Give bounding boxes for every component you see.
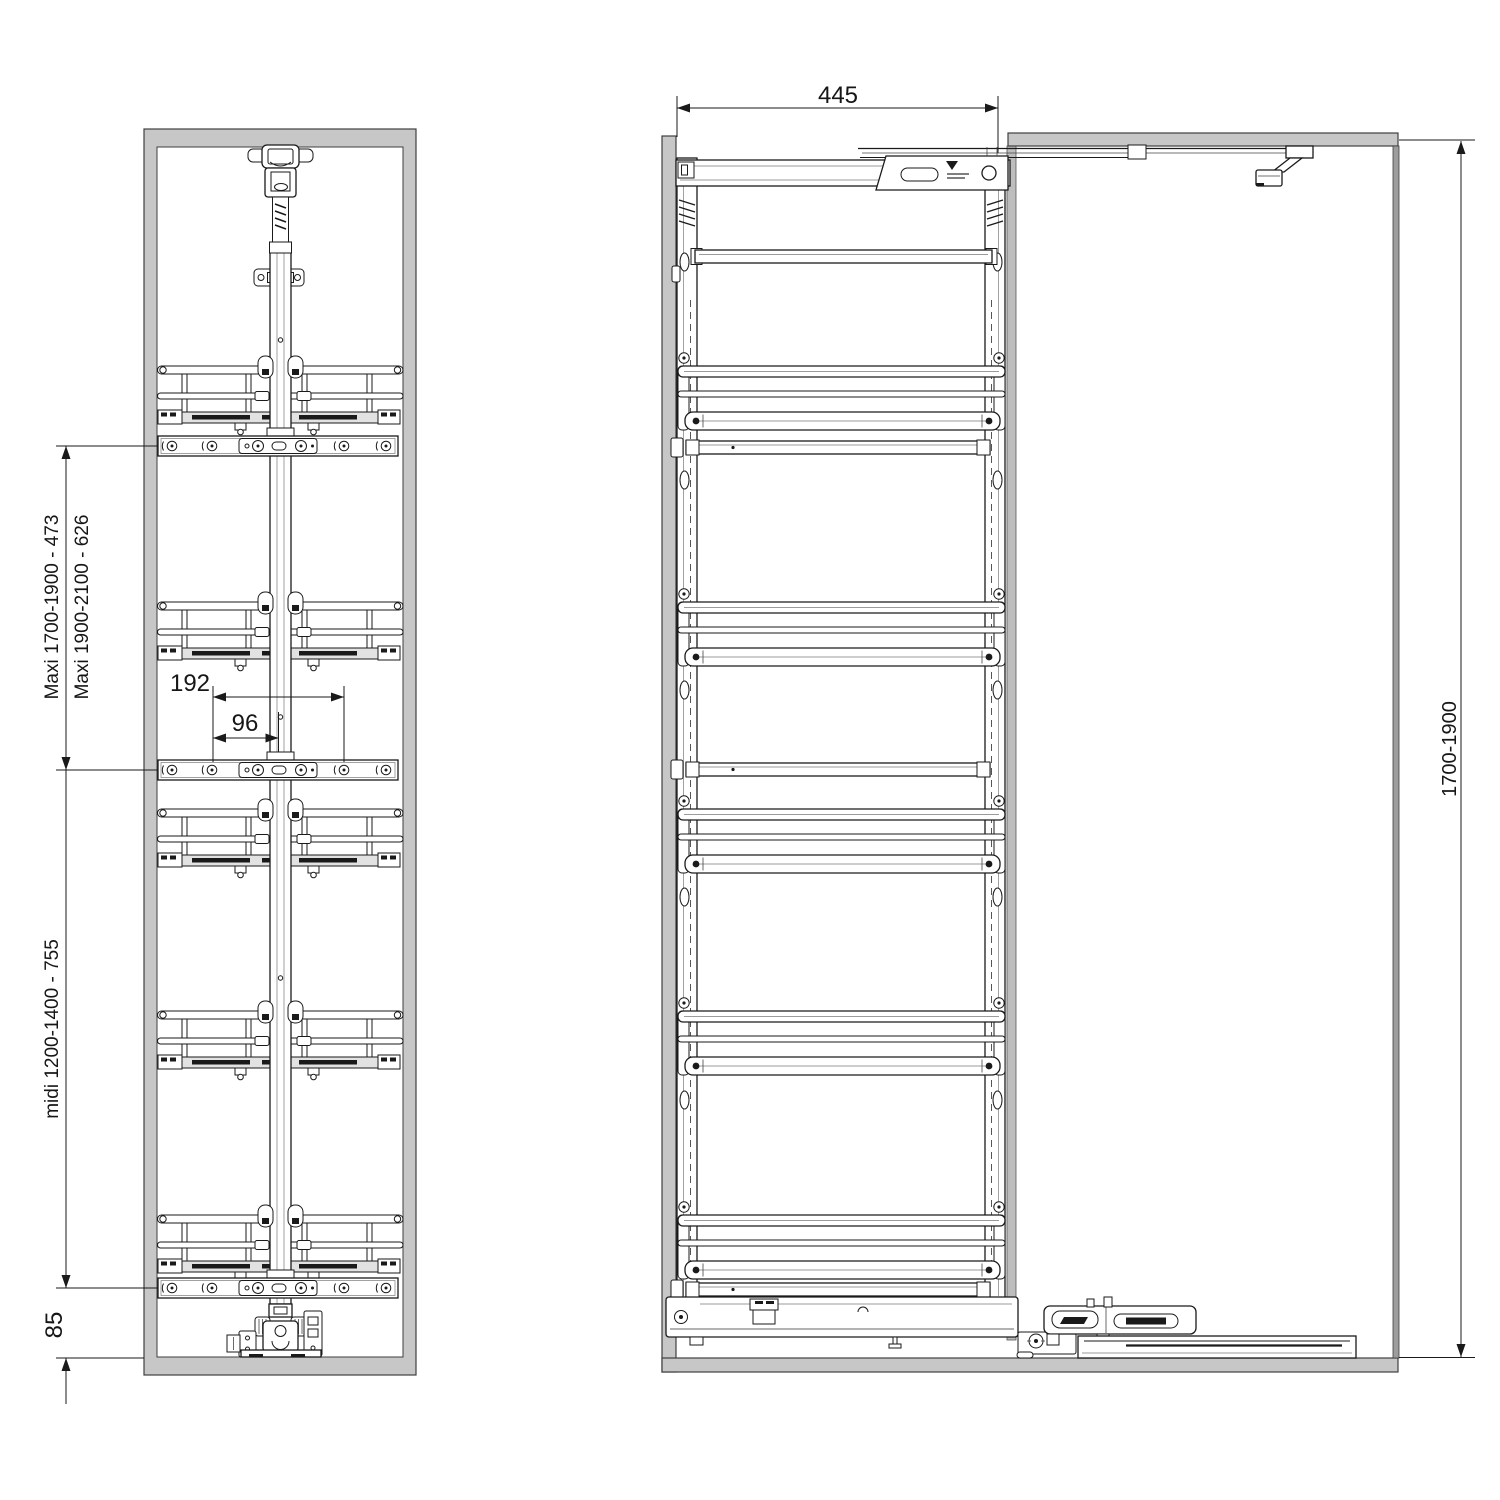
dim-label-maxi-2: Maxi 1900-2100 - 626 xyxy=(72,515,93,700)
front-view: Maxi 1700-1900 - 473 Maxi 1900-2100 - 62… xyxy=(41,129,416,1404)
larder-unit-technical-drawing: Maxi 1700-1900 - 473 Maxi 1900-2100 - 62… xyxy=(0,0,1500,1500)
top-cross-rail xyxy=(691,249,997,265)
basket-side xyxy=(678,796,1005,873)
dim-label-midi: midi 1200-1400 - 755 xyxy=(42,939,63,1119)
dim-label-maxi-1: Maxi 1700-1900 - 473 xyxy=(42,515,63,700)
mounting-bar xyxy=(158,1278,398,1298)
basket-side xyxy=(678,1202,1005,1279)
mounting-rail-side xyxy=(671,438,990,457)
top-slide-mechanism xyxy=(676,145,1288,190)
technical-drawing-page: Maxi 1700-1900 - 473 Maxi 1900-2100 - 62… xyxy=(0,0,1500,1500)
dim-label-445: 445 xyxy=(818,82,858,109)
side-cabinet-panels xyxy=(662,133,1399,1372)
side-view: 445 1700-1900 xyxy=(662,82,1475,1372)
bottom-slide-assembly xyxy=(666,1297,1356,1358)
basket-side xyxy=(678,353,1005,430)
frame-posts xyxy=(672,158,1005,1298)
dim-label-192: 192 xyxy=(170,670,210,697)
mounting-rail-side xyxy=(671,760,990,779)
basket-side xyxy=(678,589,1005,666)
dim-label-85: 85 xyxy=(41,1312,68,1339)
dim-label-height: 1700-1900 xyxy=(1439,701,1461,797)
mounting-bar xyxy=(158,760,398,780)
door-bracket xyxy=(1256,146,1313,186)
basket-side xyxy=(678,998,1005,1075)
side-dimensions: 445 1700-1900 xyxy=(677,82,1475,1358)
dim-label-96: 96 xyxy=(232,710,259,737)
mounting-bar xyxy=(158,436,398,456)
mounting-rail-side xyxy=(671,1280,990,1299)
